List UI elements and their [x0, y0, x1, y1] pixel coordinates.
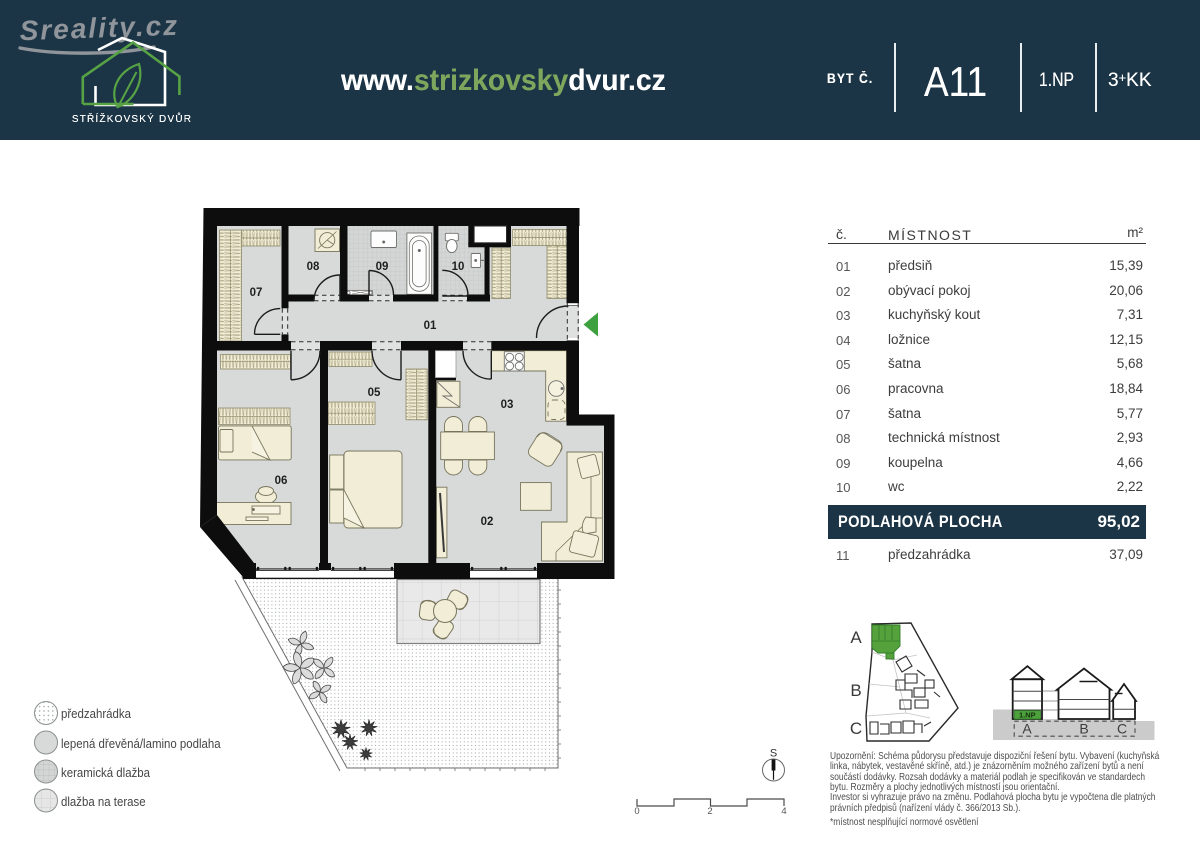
svg-text:B: B [850, 681, 861, 700]
svg-text:A: A [1022, 721, 1032, 737]
svg-text:1.NP: 1.NP [1019, 711, 1036, 720]
svg-text:07: 07 [250, 287, 263, 299]
svg-text:4: 4 [781, 806, 786, 817]
svg-text:S: S [770, 748, 777, 760]
svg-text:C: C [850, 719, 862, 738]
svg-text:08: 08 [307, 261, 320, 273]
svg-text:02: 02 [481, 516, 494, 528]
svg-text:A: A [850, 628, 862, 647]
svg-text:10: 10 [452, 261, 465, 273]
svg-text:0: 0 [634, 806, 639, 817]
svg-text:03: 03 [501, 399, 514, 411]
svg-text:05: 05 [368, 387, 381, 399]
svg-text:C: C [1117, 721, 1127, 737]
svg-text:B: B [1079, 721, 1088, 737]
svg-text:01: 01 [424, 320, 437, 332]
svg-text:09: 09 [376, 261, 389, 273]
svg-text:2: 2 [707, 806, 712, 817]
svg-text:06: 06 [275, 475, 288, 487]
